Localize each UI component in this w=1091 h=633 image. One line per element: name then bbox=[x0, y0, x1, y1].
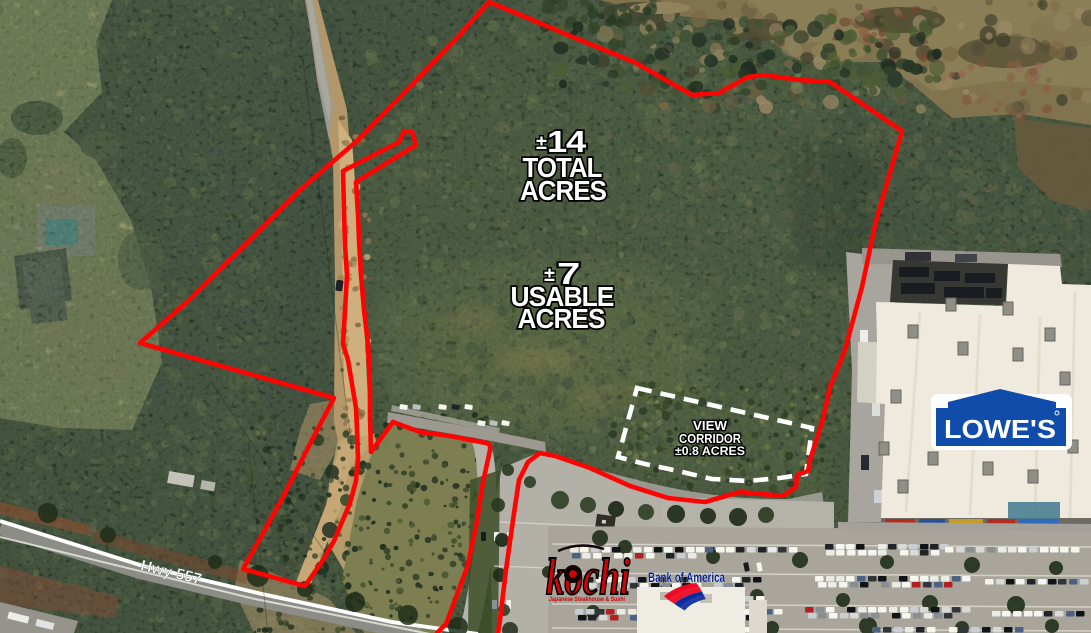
svg-text:±0.8 ACRES: ±0.8 ACRES bbox=[675, 444, 745, 458]
svg-text:LOWE'S: LOWE'S bbox=[944, 414, 1056, 444]
svg-text:Japanese Steakhouse & Sushi: Japanese Steakhouse & Sushi bbox=[549, 597, 625, 603]
svg-text:Bank of America: Bank of America bbox=[648, 570, 725, 585]
svg-text:±: ± bbox=[536, 132, 547, 154]
svg-text:ACRES: ACRES bbox=[518, 303, 605, 334]
svg-text:ACRES: ACRES bbox=[520, 175, 606, 206]
